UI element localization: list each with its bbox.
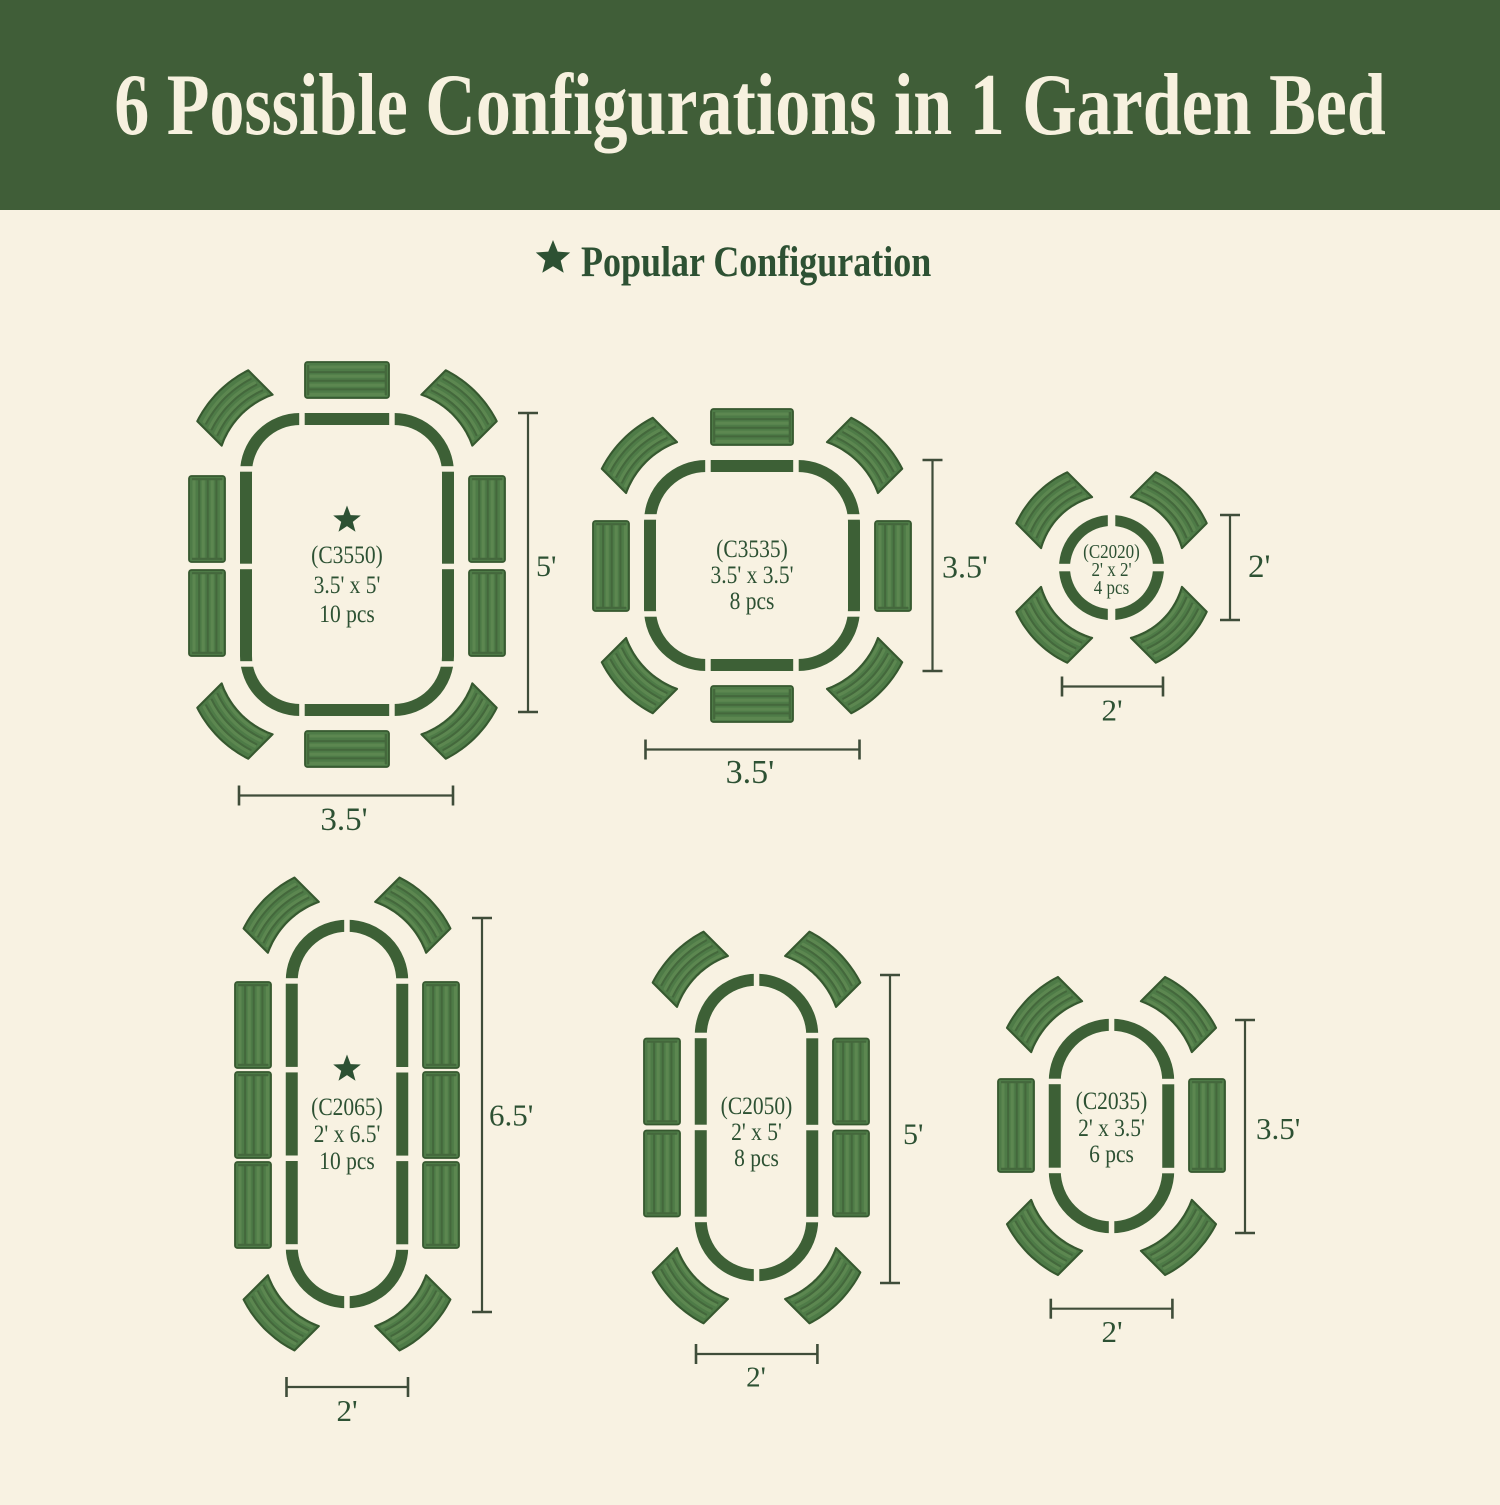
svg-text:3.5': 3.5' <box>942 549 988 585</box>
svg-text:2': 2' <box>1101 1314 1122 1349</box>
svg-text:10 pcs: 10 pcs <box>319 600 375 628</box>
svg-text:2': 2' <box>1248 549 1270 585</box>
svg-text:8 pcs: 8 pcs <box>730 587 775 615</box>
svg-text:3.5': 3.5' <box>726 754 775 791</box>
svg-text:3.5': 3.5' <box>1256 1111 1300 1146</box>
svg-text:6 pcs: 6 pcs <box>1089 1140 1134 1168</box>
svg-text:2': 2' <box>746 1362 766 1394</box>
svg-text:(C2050): (C2050) <box>721 1092 793 1120</box>
svg-text:10 pcs: 10 pcs <box>319 1147 375 1175</box>
svg-text:2': 2' <box>336 1393 357 1428</box>
svg-text:2' x 6.5': 2' x 6.5' <box>314 1120 381 1148</box>
svg-text:3.5' x 3.5': 3.5' x 3.5' <box>711 561 794 589</box>
svg-text:6 Possible Configurations in 1: 6 Possible Configurations in 1 Garden Be… <box>114 57 1386 154</box>
svg-text:(C3535): (C3535) <box>716 535 788 563</box>
svg-text:5': 5' <box>903 1118 923 1151</box>
svg-text:6.5': 6.5' <box>489 1098 533 1133</box>
svg-text:(C3550): (C3550) <box>311 541 383 569</box>
svg-text:5': 5' <box>536 550 556 583</box>
svg-text:8 pcs: 8 pcs <box>734 1144 779 1172</box>
svg-text:3.5' x 5': 3.5' x 5' <box>314 571 381 599</box>
svg-text:2': 2' <box>1101 693 1122 728</box>
svg-text:4 pcs: 4 pcs <box>1094 577 1129 600</box>
svg-text:2' x 5': 2' x 5' <box>731 1118 782 1146</box>
svg-text:2' x 3.5': 2' x 3.5' <box>1078 1114 1145 1142</box>
svg-text:(C2065): (C2065) <box>311 1093 383 1121</box>
svg-text:3.5': 3.5' <box>320 802 367 838</box>
svg-text:(C2035): (C2035) <box>1076 1087 1148 1115</box>
svg-text:Popular Configuration: Popular Configuration <box>581 238 931 286</box>
